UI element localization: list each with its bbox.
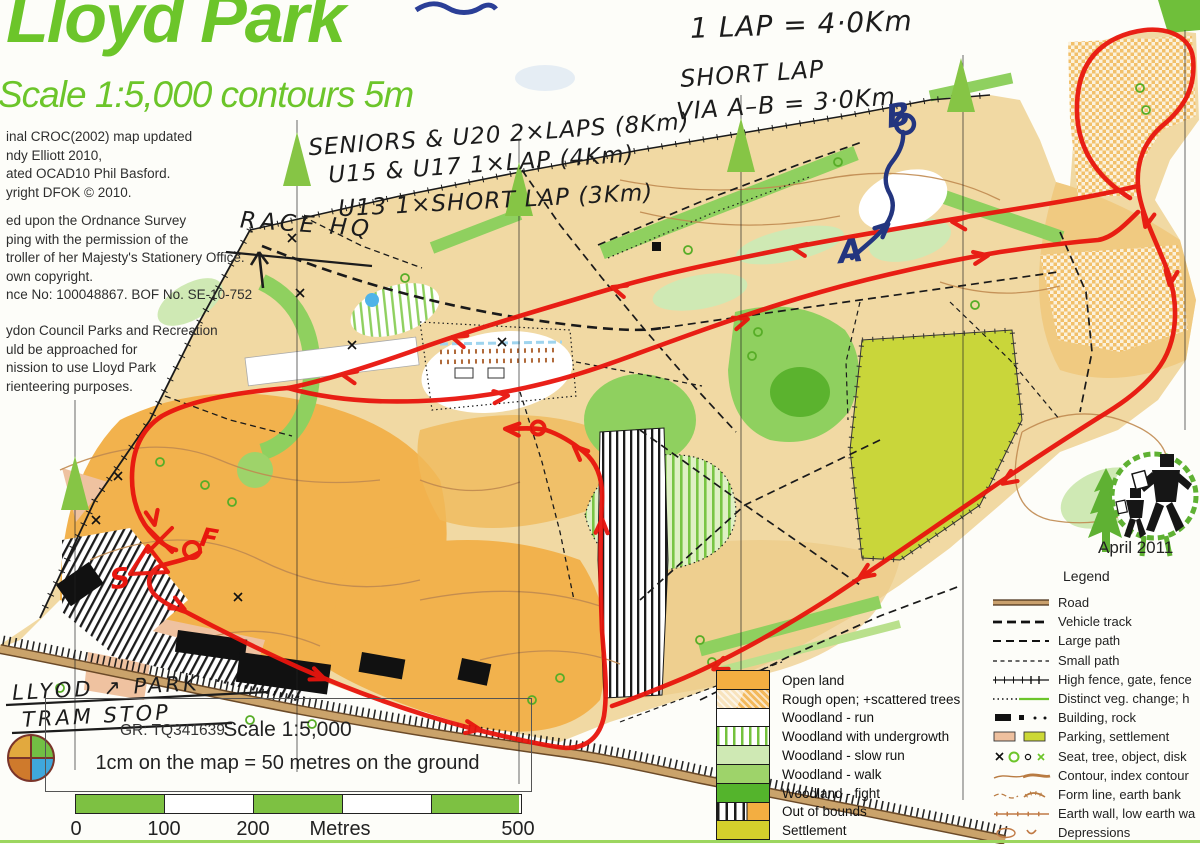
fence-symbol (993, 672, 1051, 687)
legend-row: Open land (716, 671, 960, 690)
map-title: Lloyd Park (6, 0, 344, 58)
swatch-woodland-run (716, 708, 770, 728)
form-line-symbol (993, 787, 1051, 802)
swatch-out-of-bounds (716, 802, 770, 822)
legend-row: Rough open; +scattered trees (716, 690, 960, 709)
pond (365, 293, 379, 307)
earth-wall-symbol (993, 806, 1051, 821)
building-rock-symbol (993, 710, 1051, 725)
credits-block-1: inal CROC(2002) map updated ndy Elliott … (6, 128, 192, 202)
road-symbol (993, 595, 1051, 610)
symbol-legend: Legend Road Vehicle track Large path Sma… (993, 568, 1200, 842)
scale-segment (432, 795, 519, 813)
credit-line: nce No: 100048867. BOF No. SE-10-752 (6, 286, 252, 305)
legend-row: Small path (993, 651, 1200, 670)
legend-row: Road (993, 593, 1200, 612)
credit-line: yright DFOK © 2010. (6, 184, 192, 203)
scale-segment (254, 795, 343, 813)
scale-tick-200: 200 (236, 818, 269, 841)
legend-row: Woodland - slow run (716, 746, 960, 765)
parking-settlement-symbol (993, 729, 1051, 744)
legend-row: Form line, earth bank (993, 785, 1200, 804)
logo-date: April 2011 (1098, 538, 1173, 558)
legend-row: Large path (993, 631, 1200, 650)
legend-row: Settlement (716, 821, 960, 840)
legend-row: Woodland with undergrowth (716, 727, 960, 746)
swatch-settlement (716, 820, 770, 840)
credit-line: uld be approached for (6, 341, 218, 360)
credit-line: nission to use Lloyd Park (6, 359, 218, 378)
credit-line: ed upon the Ordnance Survey (6, 212, 252, 231)
swatch-rough-open (716, 689, 770, 709)
scale-title: Scale 1:5,000 (45, 718, 530, 742)
credits-block-2: ed upon the Ordnance Survey ping with th… (6, 212, 252, 305)
legend-row: Woodland - fight (716, 784, 960, 803)
swatch-fight (716, 783, 770, 803)
legend-row: Woodland - walk (716, 765, 960, 784)
credit-line: own copyright. (6, 268, 252, 287)
credit-line: ping with the permission of the (6, 231, 252, 250)
credit-line: ndy Elliott 2010, (6, 147, 192, 166)
seat-tree-symbol (993, 749, 1051, 764)
scale-tick-0: 0 (70, 818, 81, 841)
legend-row: Out of bounds (716, 803, 960, 822)
small-path-symbol (993, 653, 1051, 668)
credit-line: troller of her Majesty's Stationery Offi… (6, 249, 252, 268)
swatch-undergrowth (716, 726, 770, 746)
legend-row: Parking, settlement (993, 727, 1200, 746)
swatch-slow-run (716, 745, 770, 765)
scale-subtitle: 1cm on the map = 50 metres on the ground (45, 752, 530, 775)
label-point-a: A (836, 231, 866, 271)
legend-row: Building, rock (993, 708, 1200, 727)
credit-line: ated OCAD10 Phil Basford. (6, 165, 192, 184)
credit-line: rienteering purposes. (6, 378, 218, 397)
legend-heading: Legend (1063, 568, 1200, 584)
credits-block-3: ydon Council Parks and Recreation uld be… (6, 322, 218, 396)
depressions-symbol (993, 825, 1051, 840)
swatch-open-land (716, 670, 770, 690)
legend-row: Contour, index contour (993, 766, 1200, 785)
legend-row: Distinct veg. change; h (993, 689, 1200, 708)
legend-row: Woodland - run (716, 709, 960, 728)
map-sheet-icon (1116, 500, 1127, 514)
scale-segment (165, 795, 254, 813)
legend-row: Vehicle track (993, 612, 1200, 631)
scale-tick-500: 500 (501, 818, 534, 841)
legend-row: High fence, gate, fence (993, 670, 1200, 689)
scale-tick-100: 100 (147, 818, 180, 841)
vehicle-track-symbol (993, 614, 1051, 629)
credit-line: inal CROC(2002) map updated (6, 128, 192, 147)
blue-scribble (416, 4, 496, 13)
scale-tick-metres: Metres (309, 818, 370, 841)
map-subtitle: Scale 1:5,000 contours 5m (0, 74, 413, 116)
credit-line: ydon Council Parks and Recreation (6, 322, 218, 341)
legend-row: Seat, tree, object, disk (993, 747, 1200, 766)
terrain-legend: Open land Rough open; +scattered trees W… (716, 671, 960, 840)
contour-symbol (993, 768, 1051, 783)
swatch-walk (716, 764, 770, 784)
veg-change-symbol (993, 691, 1051, 706)
scale-segment (76, 795, 165, 813)
label-start-s: S (108, 561, 134, 597)
legend-row: Earth wall, low earth wa (993, 804, 1200, 823)
bottom-edge-line (0, 840, 1200, 843)
large-path-symbol (993, 633, 1051, 648)
scanned-map-page: Lloyd Park Scale 1:5,000 contours 5m ina… (0, 0, 1200, 844)
scale-segment (343, 795, 432, 813)
scale-box (45, 698, 532, 792)
scale-bar (75, 794, 522, 814)
